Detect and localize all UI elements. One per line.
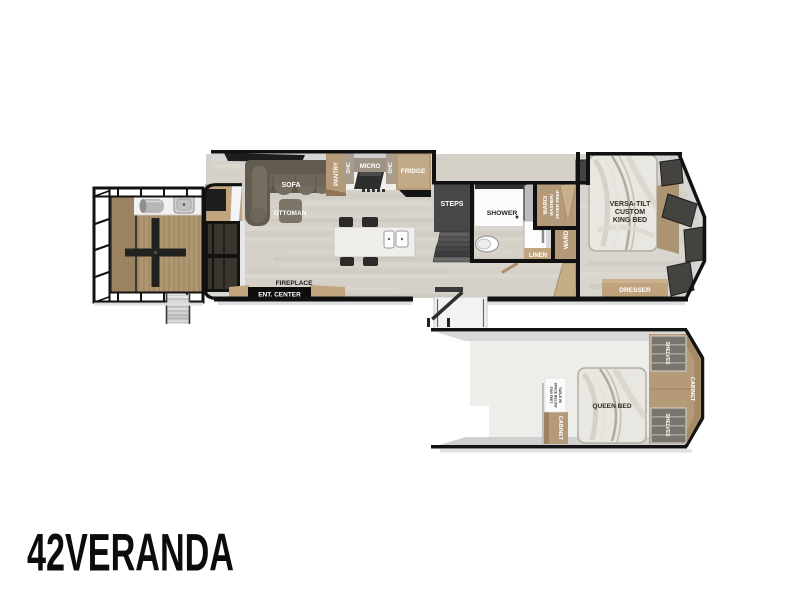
svg-text:WARD: WARD (564, 230, 570, 249)
svg-text:QUEEN BED: QUEEN BED (592, 403, 631, 410)
svg-text:OTTOMAN: OTTOMAN (274, 210, 307, 217)
svg-text:CABINET: CABINET (689, 377, 695, 402)
svg-text:DRESSER: DRESSER (619, 287, 651, 294)
svg-text:OHC: OHC (388, 162, 394, 174)
svg-text:42VERANDA: 42VERANDA (27, 524, 234, 582)
svg-text:TABLE W/: TABLE W/ (558, 387, 562, 403)
svg-text:LINEN: LINEN (529, 253, 547, 259)
svg-text:STEPS: STEPS (441, 201, 464, 208)
svg-text:SHOWER: SHOWER (487, 210, 518, 217)
svg-text:SOFA: SOFA (281, 182, 300, 189)
svg-text:MICRO: MICRO (360, 163, 381, 170)
svg-text:SHELVES: SHELVES (664, 342, 670, 366)
svg-text:FOR FEET: FOR FEET (549, 387, 553, 405)
svg-text:SHELVES: SHELVES (664, 414, 670, 438)
svg-text:CUSTOM: CUSTOM (615, 209, 645, 216)
svg-text:SPACE BELOW: SPACE BELOW (554, 383, 558, 409)
svg-text:PANTRY: PANTRY (334, 162, 340, 186)
svg-text:DRYER PREP: DRYER PREP (555, 190, 560, 220)
svg-text:FIREPLACE: FIREPLACE (276, 280, 314, 287)
svg-text:CABINET: CABINET (557, 416, 563, 441)
svg-text:FRIDGE: FRIDGE (401, 168, 426, 175)
svg-text:VERSA-TILT: VERSA-TILT (610, 201, 651, 208)
svg-text:KING BED: KING BED (613, 217, 647, 224)
svg-text:OHC: OHC (346, 162, 352, 174)
svg-text:WASHER/: WASHER/ (549, 194, 554, 216)
